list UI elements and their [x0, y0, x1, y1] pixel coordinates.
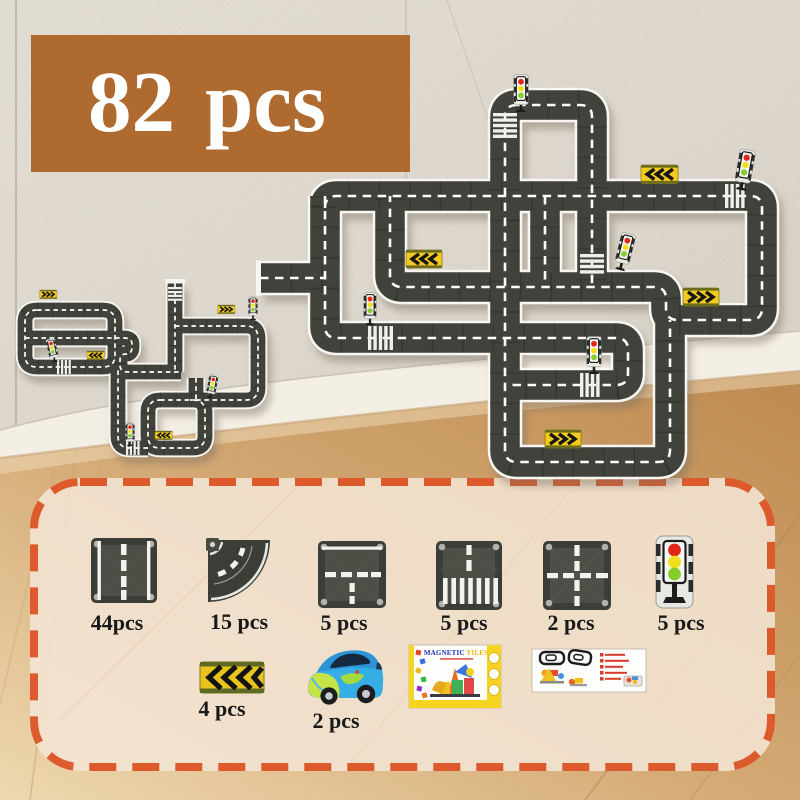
svg-text:44pcs: 44pcs	[91, 610, 144, 635]
svg-text:2 pcs: 2 pcs	[547, 610, 595, 635]
svg-text:5 pcs: 5 pcs	[320, 610, 368, 635]
svg-text:15 pcs: 15 pcs	[210, 609, 269, 634]
svg-text:5 pcs: 5 pcs	[657, 610, 705, 635]
svg-text:MAGNETIC TILES: MAGNETIC TILES	[424, 649, 488, 657]
svg-text:2 pcs: 2 pcs	[312, 708, 360, 733]
svg-text:4 pcs: 4 pcs	[198, 696, 246, 721]
svg-text:82pcs: 82pcs	[88, 53, 326, 150]
svg-text:5 pcs: 5 pcs	[440, 610, 488, 635]
